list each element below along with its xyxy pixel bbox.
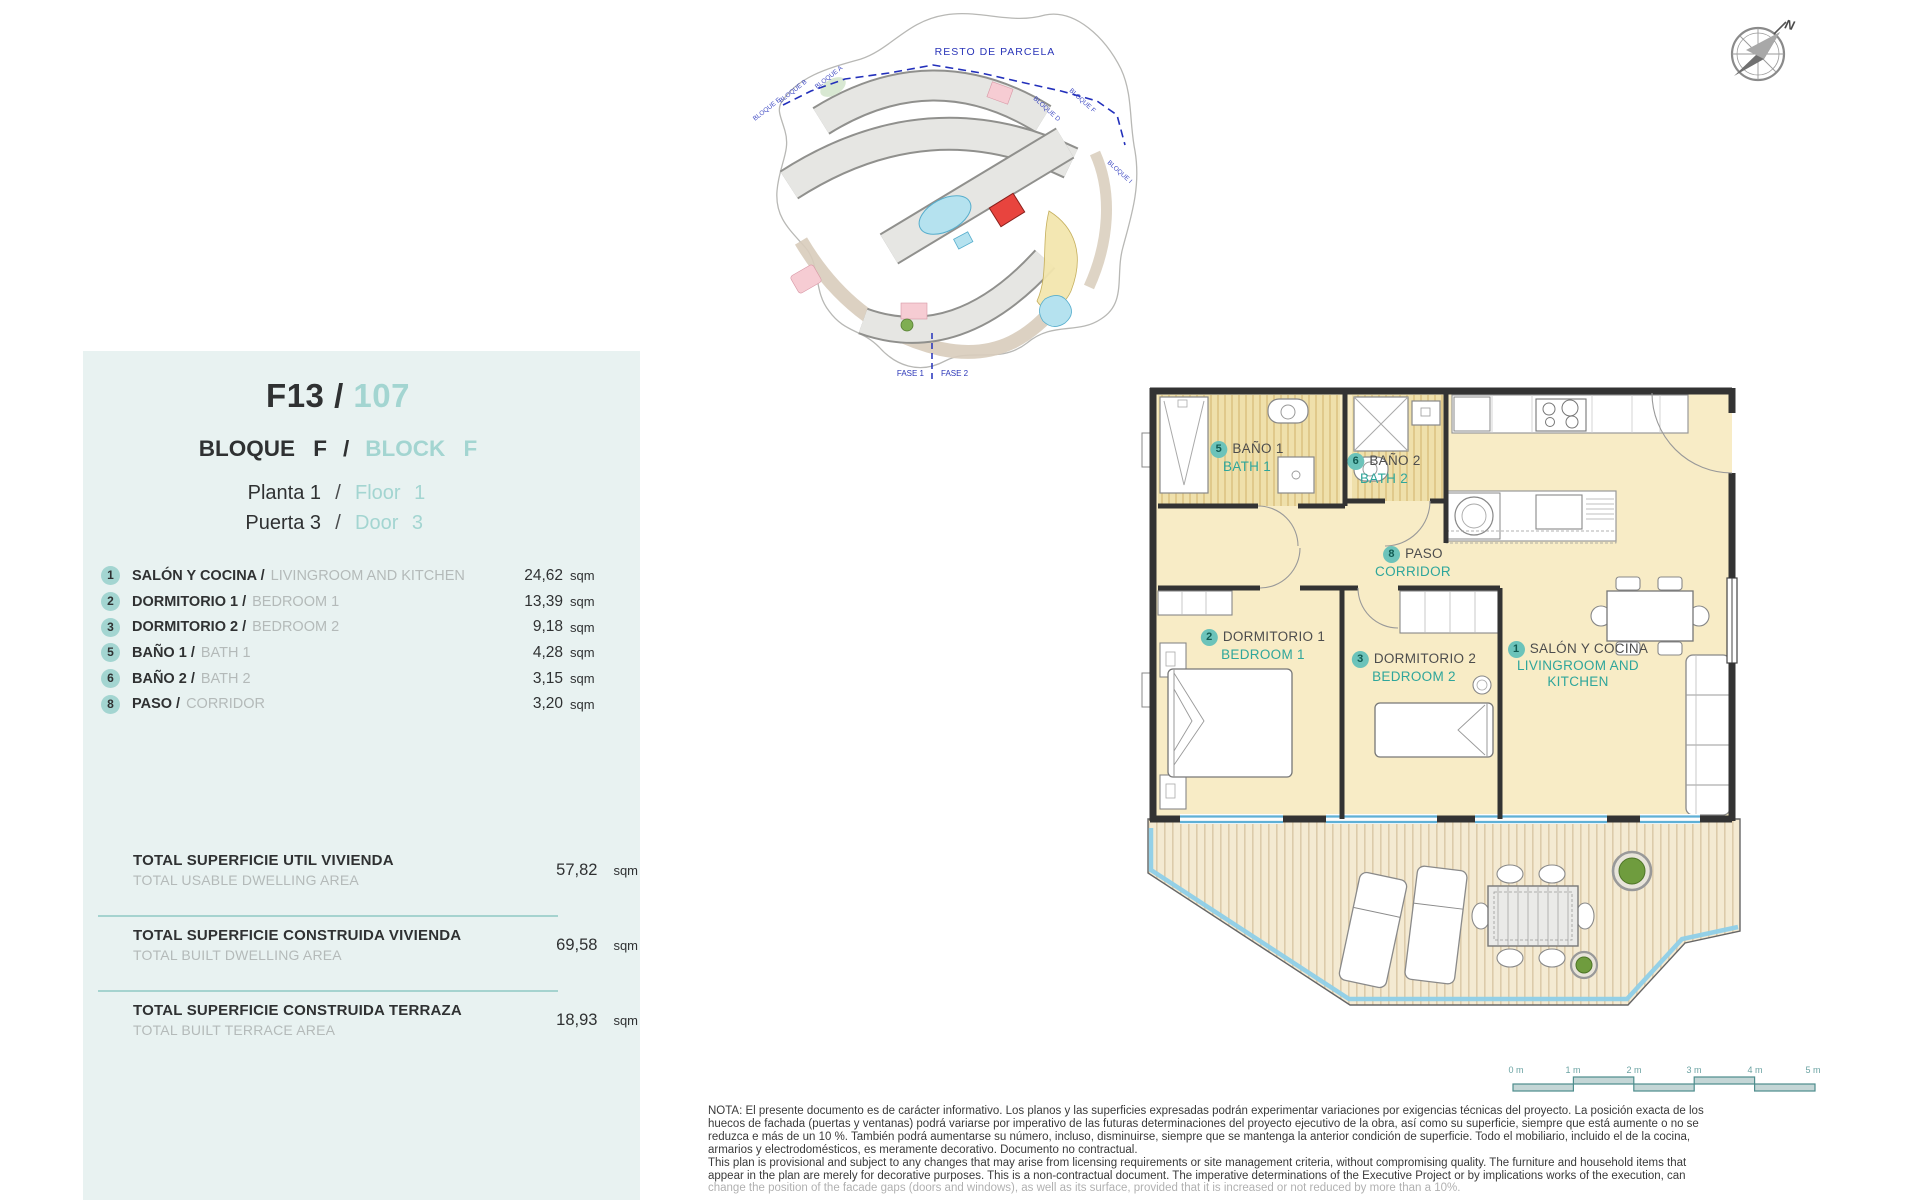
room-area-list: 1 SALÓN Y COCINA / LIVINGROOM AND KITCHE… xyxy=(101,563,606,717)
room-area-value: 4,28 xyxy=(511,644,563,662)
room-name-en: LIVINGROOM AND KITCHEN xyxy=(271,568,465,584)
note-line: appear in the plan are merely for decora… xyxy=(708,1170,1848,1183)
room-name-es: BAÑO 1 xyxy=(1232,441,1283,456)
total-label-en: TOTAL USABLE DWELLING AREA xyxy=(133,872,556,888)
room-name-es: SALÓN Y COCINA xyxy=(1530,641,1649,656)
total-unit: sqm xyxy=(613,863,638,878)
room-number-badge: 5 xyxy=(101,643,120,662)
scale-tick-label: 0 m xyxy=(1508,1065,1523,1075)
room-area-unit: sqm xyxy=(570,645,606,660)
room-name-en: CORRIDOR xyxy=(186,696,265,712)
room-name-en: BATH 1 xyxy=(201,645,251,661)
window-right xyxy=(1727,578,1737,663)
total-label-en: TOTAL BUILT DWELLING AREA xyxy=(133,947,556,963)
scale-bar: 0 m 1 m 2 m 3 m 4 m 5 m xyxy=(1480,1062,1830,1102)
room-number-badge: 2 xyxy=(1201,629,1218,646)
room-area-value: 24,62 xyxy=(511,567,563,585)
room-number-badge: 5 xyxy=(1210,441,1227,458)
room-name-es: SALÓN Y COCINA / xyxy=(132,568,265,584)
divider xyxy=(98,915,558,917)
room-name-en: BATH 1 xyxy=(1210,458,1283,475)
total-built-dwelling-area: TOTAL SUPERFICIE CONSTRUIDA VIVIENDA TOT… xyxy=(133,927,638,963)
room-number-badge: 2 xyxy=(101,592,120,611)
potted-plant xyxy=(1613,852,1651,890)
room-area-unit: sqm xyxy=(570,671,606,686)
room-name-en: CORRIDOR xyxy=(1375,563,1451,580)
room-row: 8 PASO / CORRIDOR 3,20 sqm xyxy=(101,691,606,717)
double-bed xyxy=(1168,669,1292,777)
room-row: 6 BAÑO 2 / BATH 2 3,15 sqm xyxy=(101,666,606,692)
label-corridor: 8PASO CORRIDOR xyxy=(1375,545,1451,580)
plan-sheet: F13 / 107 BLOQUE F / BLOCK F Planta 1 / … xyxy=(0,0,1920,1200)
room-area-unit: sqm xyxy=(570,594,606,609)
note-line: This plan is provisional and subject to … xyxy=(708,1157,1848,1170)
sofa xyxy=(1686,655,1730,815)
room-number-badge: 8 xyxy=(101,695,120,714)
room-name-es: DORMITORIO 1 / xyxy=(132,594,246,610)
room-number-badge: 1 xyxy=(101,566,120,585)
toilet xyxy=(1268,399,1308,423)
door-es: Puerta 3 xyxy=(171,512,321,535)
shower-tray xyxy=(1354,397,1408,451)
shower-tray xyxy=(1160,397,1208,493)
room-name-es: BAÑO 2 xyxy=(1369,453,1420,468)
scale-tick-label: 2 m xyxy=(1626,1065,1641,1075)
kitchen-island xyxy=(1446,491,1616,543)
total-labels: TOTAL SUPERFICIE CONSTRUIDA VIVIENDA TOT… xyxy=(133,927,556,963)
room-name-en: BEDROOM 2 xyxy=(1352,668,1476,685)
room-area-value: 13,39 xyxy=(511,593,563,611)
room-row: 1 SALÓN Y COCINA / LIVINGROOM AND KITCHE… xyxy=(101,563,606,589)
room-name-en: BATH 2 xyxy=(201,671,251,687)
room-number-badge: 8 xyxy=(1383,546,1400,563)
site-plan: RESTO DE PARCELA FASE 1 FASE 2 BLOQUE E … xyxy=(693,3,1143,388)
total-value: 18,93 xyxy=(556,1011,597,1030)
total-label-en: TOTAL BUILT TERRACE AREA xyxy=(133,1022,556,1038)
label-bedroom1: 2DORMITORIO 1 BEDROOM 1 xyxy=(1201,628,1325,663)
note-line: NOTA: El presente documento es de caráct… xyxy=(708,1105,1848,1118)
door-en: Door 3 xyxy=(355,512,505,535)
room-name-es: DORMITORIO 2 / xyxy=(132,619,246,635)
room-row: 2 DORMITORIO 1 / BEDROOM 1 13,39 sqm xyxy=(101,589,606,615)
total-label-es: TOTAL SUPERFICIE CONSTRUIDA TERRAZA xyxy=(133,1002,556,1019)
note-line: reduzca e más de un 10 %. También podrá … xyxy=(708,1131,1848,1144)
label-bath1: 5BAÑO 1 BATH 1 xyxy=(1210,440,1283,475)
scale-tick-label: 1 m xyxy=(1565,1065,1580,1075)
block-en: BLOCK F xyxy=(365,436,477,462)
total-unit: sqm xyxy=(613,938,638,953)
north-label: N xyxy=(1783,16,1796,33)
slash-separator: / xyxy=(321,482,355,505)
room-row: 3 DORMITORIO 2 / BEDROOM 2 9,18 sqm xyxy=(101,614,606,640)
room-area-unit: sqm xyxy=(570,620,606,635)
unit-info-panel: F13 / 107 BLOQUE F / BLOCK F Planta 1 / … xyxy=(83,351,640,1200)
room-area-value: 3,20 xyxy=(511,695,563,713)
unit-number: 107 xyxy=(353,377,410,414)
door-line: Puerta 3 / Door 3 xyxy=(83,512,593,535)
room-number-badge: 6 xyxy=(101,669,120,688)
fase-1-label: FASE 1 xyxy=(897,369,925,378)
room-area-unit: sqm xyxy=(570,697,606,712)
floor-es: Planta 1 xyxy=(171,482,321,505)
compass-icon: N xyxy=(1722,12,1802,92)
unit-code: F13 / xyxy=(266,377,344,414)
label-livingroom-kitchen: 1SALÓN Y COCINA LIVINGROOM AND KITCHEN xyxy=(1503,640,1653,690)
note-line: huecos de fachada (puertas y ventanas) p… xyxy=(708,1118,1848,1131)
room-name-es: DORMITORIO 2 xyxy=(1374,651,1476,666)
divider xyxy=(98,990,558,992)
total-usable-area: TOTAL SUPERFICIE UTIL VIVIENDA TOTAL USA… xyxy=(133,852,638,888)
room-name-es: BAÑO 2 / xyxy=(132,671,195,687)
scale-tick-label: 3 m xyxy=(1686,1065,1701,1075)
room-name-es: PASO / xyxy=(132,696,180,712)
scale-tick-label: 4 m xyxy=(1747,1065,1762,1075)
room-area-value: 9,18 xyxy=(511,618,563,636)
washbasin xyxy=(1412,401,1440,425)
floor-line: Planta 1 / Floor 1 xyxy=(83,482,593,505)
single-bed xyxy=(1375,703,1493,757)
pool-lower xyxy=(1039,295,1071,326)
room-name-es: PASO xyxy=(1405,546,1443,561)
room-number-badge: 3 xyxy=(1352,651,1369,668)
room-name-en: BEDROOM 1 xyxy=(1201,646,1325,663)
room-name-es: BAÑO 1 / xyxy=(132,645,195,661)
total-value: 69,58 xyxy=(556,936,597,955)
room-name-en: BEDROOM 2 xyxy=(252,619,339,635)
room-number-badge: 1 xyxy=(1508,641,1525,658)
note-line-clipped: change the position of the facade gaps (… xyxy=(708,1182,1848,1195)
scale-tick-label: 5 m xyxy=(1805,1065,1820,1075)
total-labels: TOTAL SUPERFICIE UTIL VIVIENDA TOTAL USA… xyxy=(133,852,556,888)
room-number-badge: 6 xyxy=(1347,453,1364,470)
room-area-unit: sqm xyxy=(570,568,606,583)
room-name-en: BATH 2 xyxy=(1347,470,1420,487)
slash-separator: / xyxy=(343,436,349,462)
closet xyxy=(1400,591,1498,633)
slash-separator: / xyxy=(321,512,355,535)
potted-plant-small xyxy=(1571,952,1597,978)
resto-de-parcela-label: RESTO DE PARCELA xyxy=(935,46,1056,58)
nightstand xyxy=(1160,775,1186,809)
room-name-en: BEDROOM 1 xyxy=(252,594,339,610)
label-bath2: 6BAÑO 2 BATH 2 xyxy=(1347,452,1420,487)
pink-zone xyxy=(901,303,927,319)
room-row: 5 BAÑO 1 / BATH 1 4,28 sqm xyxy=(101,640,606,666)
unit-title: F13 / 107 xyxy=(83,377,593,415)
block-line: BLOQUE F / BLOCK F xyxy=(83,436,593,462)
total-label-es: TOTAL SUPERFICIE CONSTRUIDA VIVIENDA xyxy=(133,927,556,944)
total-built-terrace-area: TOTAL SUPERFICIE CONSTRUIDA TERRAZA TOTA… xyxy=(133,1002,638,1038)
room-area-value: 3,15 xyxy=(511,670,563,688)
total-labels: TOTAL SUPERFICIE CONSTRUIDA TERRAZA TOTA… xyxy=(133,1002,556,1038)
total-label-es: TOTAL SUPERFICIE UTIL VIVIENDA xyxy=(133,852,556,869)
label-bedroom2: 3DORMITORIO 2 BEDROOM 2 xyxy=(1352,650,1476,685)
total-unit: sqm xyxy=(613,1013,638,1028)
room-number-badge: 3 xyxy=(101,618,120,637)
room-name-es: DORMITORIO 1 xyxy=(1223,629,1325,644)
closet xyxy=(1158,591,1232,615)
fase-2-label: FASE 2 xyxy=(941,369,969,378)
floor-en: Floor 1 xyxy=(355,482,505,505)
room-name-en: LIVINGROOM AND KITCHEN xyxy=(1503,658,1653,690)
block-es: BLOQUE F xyxy=(199,436,327,462)
total-value: 57,82 xyxy=(556,861,597,880)
note-line: armarios y electrodomésticos, es meramen… xyxy=(708,1144,1848,1157)
disclaimer-note: NOTA: El presente documento es de caráct… xyxy=(708,1105,1848,1195)
green-tree xyxy=(901,319,913,331)
